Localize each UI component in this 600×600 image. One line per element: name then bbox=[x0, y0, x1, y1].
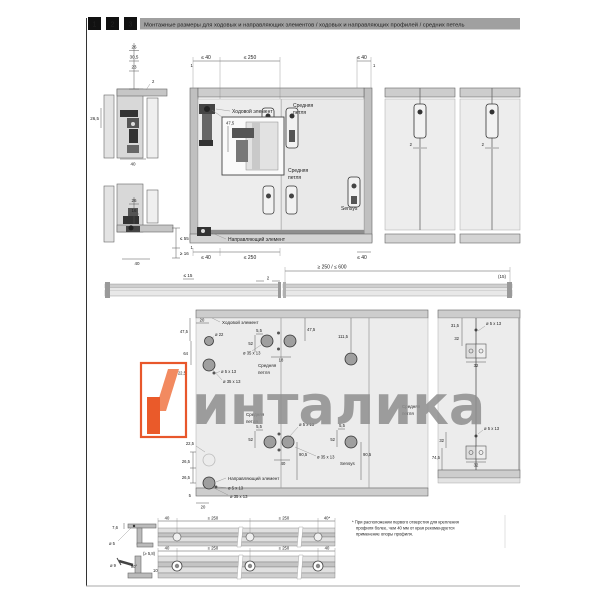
dim-lines bbox=[193, 248, 371, 256]
right-panel-2: 2 bbox=[460, 88, 520, 243]
guide-label: Направляющий элемент bbox=[228, 475, 279, 481]
dim: ø 5 x 13 bbox=[228, 486, 244, 491]
dim: ø 35 x 13 bbox=[243, 351, 261, 356]
dim: 20 bbox=[201, 505, 206, 510]
dim: ø 5 x 13 bbox=[486, 321, 502, 326]
dim: ≤ 15 bbox=[184, 273, 193, 278]
dim: 40 bbox=[281, 461, 286, 466]
dim: 7,6 bbox=[112, 525, 118, 530]
dim: 52 bbox=[248, 341, 253, 346]
hinge-label: Средняя bbox=[293, 103, 313, 109]
dim: (15) bbox=[498, 274, 507, 279]
hole-22 bbox=[205, 337, 214, 346]
dim: ø 5 x 13 bbox=[484, 426, 500, 431]
page-title: Монтажные размеры для ходовых и направля… bbox=[144, 21, 465, 28]
hole-35 bbox=[203, 477, 215, 489]
cabinet-elevation: 47,5 Ходовой элемент Средняя петля Средн… bbox=[190, 55, 376, 261]
hinge-label: Средняя bbox=[288, 168, 308, 174]
dim: 23 bbox=[131, 65, 137, 70]
footnote-line: * При расположении первого отверстия для… bbox=[352, 520, 459, 525]
hinge-label: петля bbox=[293, 110, 306, 116]
hole-35 bbox=[203, 359, 215, 371]
hinge-cup-hole bbox=[345, 436, 357, 448]
right-panel-1: 2 bbox=[385, 88, 455, 243]
dim: ≤ 250 bbox=[244, 55, 257, 61]
tab-3: 3 bbox=[129, 22, 133, 29]
dim: 16 bbox=[131, 208, 137, 213]
side-section-bottom: 26 16 ≤ 55 ≥ 16 40 bbox=[104, 184, 189, 266]
logo-bar bbox=[147, 397, 160, 434]
profile-a-section: 7,6 ø 5 bbox=[109, 523, 156, 547]
dim: ≤ 250 bbox=[208, 546, 219, 551]
dim: ø 22 bbox=[215, 332, 224, 337]
tab-1: 1 bbox=[93, 22, 97, 29]
dim: 2 bbox=[267, 276, 270, 281]
profile-row-b: (≥ 5,8) ø 9 90° 10 40 ≤ 250 bbox=[110, 546, 335, 580]
profile-a-rail: 40 ≤ 250 ≤ 250 40* bbox=[158, 516, 335, 548]
dim: 90,5 bbox=[299, 452, 308, 457]
elevation-right-panels: 2 2 bbox=[385, 88, 520, 243]
dim: 47,5 bbox=[226, 121, 235, 126]
footnote: * При расположении первого отверстия для… bbox=[352, 515, 505, 548]
dim: 47,5 bbox=[180, 329, 189, 334]
profile-b-rail: 40 ≤ 250 ≤ 250 40 bbox=[158, 546, 335, 580]
hinge-label: Средняя bbox=[258, 363, 277, 368]
dim: 40 bbox=[134, 261, 140, 266]
dim: ø 35 x 13 bbox=[230, 494, 248, 499]
dim: ≤ 40 bbox=[357, 55, 367, 61]
dim: 5 bbox=[189, 493, 192, 498]
catalog-page: 1 2 3 Монтажные размеры для ходовых и на… bbox=[0, 0, 600, 600]
watermark: инталика bbox=[141, 363, 485, 437]
hinge-cup-hole bbox=[282, 436, 294, 448]
dim: 30,5 bbox=[130, 55, 139, 60]
dim: (≥ 5,8) bbox=[143, 551, 156, 556]
dim: 40 bbox=[325, 546, 330, 551]
dim: 20 bbox=[200, 318, 205, 323]
dim: 64 bbox=[183, 351, 188, 356]
detail-inset: 47,5 bbox=[212, 110, 284, 175]
dim: 22,5 bbox=[186, 441, 195, 446]
dim: 40* bbox=[324, 516, 331, 521]
hole-5 bbox=[215, 486, 218, 489]
page-header: 1 2 3 Монтажные размеры для ходовых и на… bbox=[88, 17, 520, 30]
dim: 32 bbox=[474, 363, 479, 368]
dim: 47,5 bbox=[307, 327, 316, 332]
dim: 2 bbox=[152, 79, 155, 84]
dim: ø 35 x 13 bbox=[317, 455, 335, 460]
hinge-cup-hole bbox=[264, 436, 276, 448]
dim: 10 bbox=[153, 568, 158, 573]
dim: ≤ 40 bbox=[201, 55, 211, 61]
dim: 32 bbox=[474, 463, 479, 468]
footnote-line: профиля более, чем 40 мм от края рекомен… bbox=[356, 526, 454, 531]
dim: 111,5 bbox=[338, 334, 349, 339]
dim: ≤ 250 bbox=[279, 516, 290, 521]
guide-element bbox=[197, 227, 211, 236]
tab-2: 2 bbox=[111, 22, 115, 29]
runner-label: Ходовой элемент bbox=[232, 108, 273, 115]
tick: 1 bbox=[373, 63, 376, 68]
dim: ≥ 16 bbox=[180, 251, 189, 256]
sensys-label: Sensys bbox=[340, 461, 356, 466]
dim: 40 bbox=[130, 162, 136, 167]
dim: ≥ 250 / ≤ 600 bbox=[317, 265, 346, 271]
dim: 31,5 bbox=[451, 323, 460, 328]
sensys-hinge bbox=[348, 177, 360, 207]
dim: 26,5 bbox=[182, 459, 191, 464]
hinge-label: петля bbox=[288, 175, 301, 181]
runner-label: Ходовой элемент bbox=[222, 319, 259, 325]
dim: 90,5 bbox=[363, 452, 372, 457]
dim: ø 9 bbox=[110, 563, 117, 568]
hinge-cup-hole bbox=[261, 335, 273, 347]
dim: 26 bbox=[131, 198, 137, 203]
watermark-text: инталика bbox=[192, 374, 485, 437]
dim: ≤ 250 bbox=[208, 516, 219, 521]
profile-b-section: (≥ 5,8) ø 9 90° 10 bbox=[110, 551, 158, 578]
dim: 74,5 bbox=[432, 455, 441, 460]
dim: 26,5 bbox=[182, 475, 191, 480]
dim: 40 bbox=[165, 516, 170, 521]
footnote-line: применение опоры профиля. bbox=[356, 532, 413, 537]
dim: ≤ 40 bbox=[357, 255, 367, 261]
dim: 32 bbox=[454, 336, 459, 341]
dim: 5,5 bbox=[256, 328, 262, 333]
dim: 52 bbox=[330, 437, 335, 442]
hinge-cup-hole bbox=[345, 353, 357, 365]
dim: 90° bbox=[131, 564, 138, 569]
sensys-label: Sensys bbox=[341, 206, 358, 212]
dim: ≤ 55 bbox=[180, 236, 189, 241]
dim: ø 5 bbox=[109, 541, 116, 546]
dim: ≤ 40 bbox=[201, 255, 211, 261]
side-section-top: 26 30,5 23 2 26,5 40 bbox=[90, 43, 167, 167]
plan-section-strip: ≤ 15 2 ≥ 250 / ≤ 600 (15) bbox=[105, 265, 512, 299]
hinge-cup-hole bbox=[284, 335, 296, 347]
dim: ≤ 250 bbox=[279, 546, 290, 551]
dim: 18 bbox=[279, 358, 284, 363]
guide-label: Направляющий элемент bbox=[228, 236, 286, 243]
dim: 40 bbox=[165, 546, 170, 551]
dim: ≤ 250 bbox=[244, 255, 257, 261]
dim: 32 bbox=[439, 438, 444, 443]
profile-row-a: 7,6 ø 5 40 ≤ 250 ≤ 250 40* bbox=[109, 516, 335, 548]
dim: 26 bbox=[131, 45, 137, 50]
technical-drawing: 1 2 3 Монтажные размеры для ходовых и на… bbox=[0, 0, 600, 600]
dim: 52 bbox=[248, 437, 253, 442]
dim: 26,5 bbox=[90, 116, 99, 121]
